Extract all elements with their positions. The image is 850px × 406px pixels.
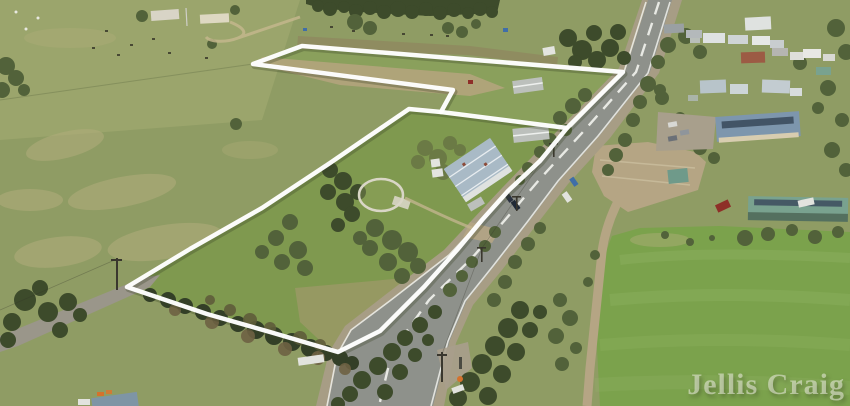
oval-worn-patch [630,233,690,247]
gazebo [667,168,688,184]
field-top-left [0,0,300,140]
paddock-red-vehicle [468,80,473,84]
aerial-property-photo: Jellis Craig [0,0,850,406]
blue-trampoline [503,28,508,32]
oval-pavilion [748,196,848,222]
garden-circle [359,179,403,211]
agency-watermark: Jellis Craig [687,368,845,401]
